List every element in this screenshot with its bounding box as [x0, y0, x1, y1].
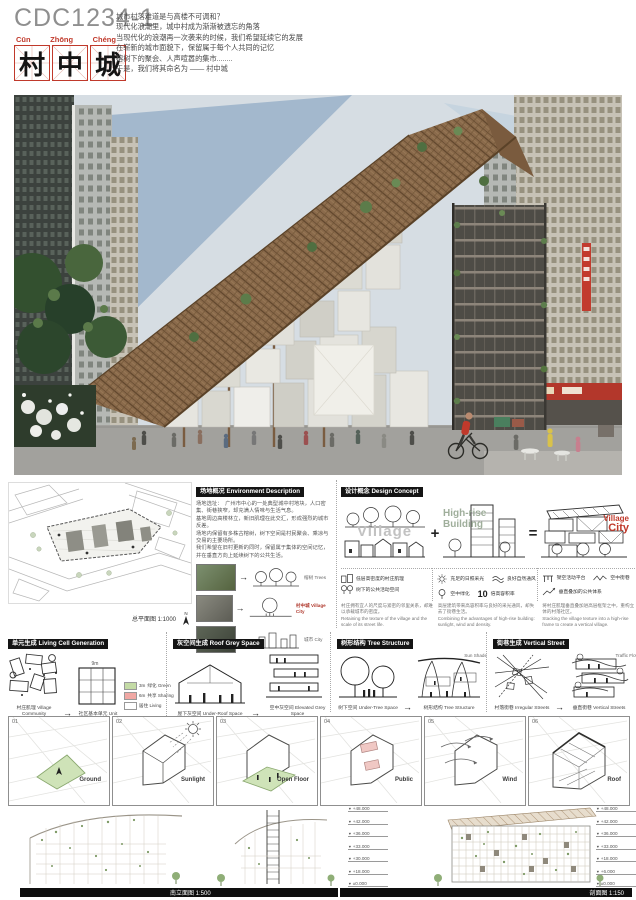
legend-label: 居住 Living: [139, 703, 161, 709]
section-header-concept: 设计概念 Design Concept: [341, 487, 423, 497]
presentation-board: CDC1234-1 Cūn Zhōng Chéng 村 中 城: [0, 0, 636, 900]
vertical-street-figure: Traffic Flow 垂直街巷 Vertical Streets: [568, 653, 630, 712]
process-panel-3: 03 Open Floor: [216, 716, 318, 806]
panel-number: 05: [428, 719, 434, 725]
houses-icon: [341, 574, 353, 583]
panel-label: Roof: [607, 777, 621, 783]
arrow-icon: →: [239, 573, 248, 582]
village-title: Village: [357, 523, 412, 540]
elevated-grey-figure: 空中灰空间 Elevated Grey Space: [264, 653, 331, 718]
module-grey-space: 灰空间生成 Roof Grey Space 屋下灰空间 Under-Roof S…: [166, 632, 331, 718]
level-row: ▼±0.000: [348, 881, 388, 887]
icon-label: 低层高密度的村庄肌理: [356, 575, 404, 582]
far-number: 10: [478, 589, 488, 599]
module-living-cell: 单元生成 Living Cell Generation: [8, 632, 160, 718]
level-row: ▼+36.000: [348, 831, 388, 837]
site-description-block: 场地概况 Environment Description 场地选址： 广州市中心…: [196, 480, 332, 628]
legend-chip-pink: [124, 692, 137, 700]
roof-space-figure: 屋下灰空间 Under-Roof Space: [173, 659, 247, 718]
intro-line: 于是，我们将其命名为 —— 村中城: [116, 64, 416, 74]
panel-number: 02: [116, 719, 122, 725]
levels-right: ▼+48.000 ▼+42.000 ▼+36.000 ▼+33.000 ▼+18…: [596, 806, 636, 894]
site-plan-drawing: [8, 482, 192, 604]
figure-label: 垂直街巷 Vertical Streets: [568, 706, 630, 712]
icon-label: 树下的公共活动空间: [356, 586, 399, 593]
dim-label: 6m: [139, 693, 145, 698]
icon-row: 良好自然通风: [492, 574, 536, 584]
icon-label: 垂直叠加的公共体系: [559, 588, 602, 595]
module-tree-structure: 树形结构 Tree Structure 树下空间 Under-Tree Spac…: [330, 632, 487, 712]
site-plan-caption: 总平面图 1:1000: [132, 614, 176, 623]
sun-shade-note: Sun Shade: [464, 653, 487, 658]
site-plan-block: 总平面图 1:1000 N: [8, 482, 190, 625]
highrise-title: High-rise Building: [443, 509, 486, 530]
intro-line: 在崭新的城市面貌下，保留属于每个人共同的记忆: [116, 43, 416, 53]
icon-row: 树下的公共活动空间: [341, 585, 432, 594]
concept-highrise: High-rise Building: [441, 501, 527, 566]
section-header-site: 场地概况 Environment Description: [196, 487, 304, 497]
plus-operator: +: [429, 526, 441, 541]
figure-label: 树形结构 Tree Structure: [416, 706, 482, 712]
wind-icon: [492, 575, 504, 583]
platform-icon: [542, 574, 554, 582]
levels-left: ▼+48.000 ▼+42.000 ▼+36.000 ▼+33.000 ▼+30…: [348, 806, 388, 894]
icon-row: 垂直叠加的公共体系: [542, 587, 635, 596]
module-vertical-street: 街巷生成 Vertical Street 村落街巷 Irregular Stre…: [486, 632, 636, 712]
panel-label: Open Floor: [277, 777, 309, 783]
label-trees: 榕树 Trees: [304, 575, 326, 581]
pinyin-row: Cūn Zhōng Chéng: [16, 35, 116, 44]
pinyin-cheng: Chéng: [93, 35, 116, 44]
icon-label: 倍高容积率: [491, 590, 515, 597]
process-panel-6: 06 Roof: [528, 716, 630, 806]
site-desc-text: 场地选址： 广州市中心的一处典型城中村地块，人口密集、街巷狭窄，却充满人情味与生…: [196, 501, 332, 560]
module-header: 单元生成 Living Cell Generation: [8, 639, 108, 649]
legend-chip-white: [124, 702, 137, 710]
site-desc-line: 场地选址： 广州市中心的一处典型城中村地块，人口密集、街巷狭窄，却充满人情味与生…: [196, 501, 332, 516]
level-row: ▼±0.000: [596, 881, 636, 887]
level-row: ▼+42.000: [596, 819, 636, 825]
frame-tower: [452, 203, 547, 430]
figure-label: 村落街巷 Irregular Streets: [493, 706, 551, 712]
massing-sketch: [321, 717, 419, 803]
north-arrow-icon: N: [182, 611, 190, 625]
ground-bar-left: 南立面图 1:500: [20, 888, 338, 897]
photo-row: → 村中城 Village City: [196, 595, 332, 622]
concept-equation: Village + High-rise Building: [341, 501, 635, 566]
intro-line: 当现代化的浪潮再一次袭来的时候，我们希望延续它的发展: [116, 33, 416, 43]
elevation-right: [428, 804, 608, 888]
icon-label: 架空活动平台: [557, 574, 586, 581]
arrow-icon: →: [236, 604, 245, 613]
intro-line: 现代化浪潮里，城中村成为渐渐被遗忘的角落: [116, 22, 416, 32]
level-row: ▼+33.000: [348, 844, 388, 850]
process-panel-5: 05 Wind: [424, 716, 526, 806]
trees-icon: [341, 585, 353, 594]
panel-label: Ground: [79, 777, 101, 783]
level-row: ▼+30.000: [348, 856, 388, 862]
intro-text: 城市村落难道是与高楼不可调和？ 现代化浪潮里，城中村成为渐渐被遗忘的角落 当现代…: [116, 12, 416, 75]
icon-label: 良好自然通风: [507, 575, 536, 582]
level-row: ▼+36.000: [596, 831, 636, 837]
highrise-desc: 高层建筑带来高容积率与良好的采光通风，却失去了街巷生活。 Combining t…: [434, 603, 539, 629]
concept-descriptions: 村庄拥有宜人的尺度与紧密的邻里关系，却难以承载城市的密度。 Retaining …: [341, 603, 635, 629]
massing-sketch: [529, 717, 627, 803]
site-desc-line: 基地周边高楼林立，新旧肌理在此交汇，形成强烈的城市反差。: [196, 516, 332, 531]
diagram-trees: [251, 565, 301, 590]
massing-sketch: [9, 717, 107, 803]
equals-operator: =: [527, 526, 539, 541]
icon-label: 充足的日照采光: [450, 575, 484, 582]
massing-sketch: [113, 717, 211, 803]
photo-village-street: [196, 595, 233, 622]
icon-row: 充足的日照采光: [437, 574, 484, 584]
arrow-icon: →: [403, 703, 412, 712]
site-desc-line: 我们希望在旧村更新的同时，保留属于集体的空间记忆，并在垂直方向上延续树下的公共生…: [196, 545, 332, 560]
level-row: ▼+18.000: [348, 869, 388, 875]
under-tree-figure: 树下空间 Under-Tree Space: [337, 653, 399, 712]
network-icon: [542, 587, 556, 596]
level-row: ▼+6.000: [596, 869, 636, 875]
elevation-left: [16, 804, 191, 888]
sun-icon: [437, 574, 447, 584]
concept-villagecity: Village City: [539, 501, 629, 566]
massing-sketch: [217, 717, 315, 803]
intro-line: 榕树下的聚会、人声喧嚣的集市........: [116, 54, 416, 64]
icon-row: 空中绿化: [437, 589, 469, 599]
process-panel-1: 01 Ground: [8, 716, 110, 806]
char-box: 中: [52, 45, 88, 81]
level-row: ▼+33.000: [596, 844, 636, 850]
char-zhong: 中: [57, 45, 83, 82]
street-plan-figure: 村落街巷 Irregular Streets: [493, 653, 551, 712]
photo-row: → 榕树 Trees: [196, 564, 332, 591]
site-desc-line: 场地内保留有多株古榕树，树下空间是村民聚会、乘凉与交易的主要场所。: [196, 531, 332, 546]
level-row: ▼+18.000: [596, 856, 636, 862]
pinyin-zhong: Zhōng: [50, 35, 73, 44]
pinyin-cun: Cūn: [16, 35, 31, 44]
module-header: 街巷生成 Vertical Street: [493, 639, 569, 649]
icon-label: 空中绿化: [450, 590, 469, 597]
villagecity-icons: 架空活动平台 空中街巷 垂直叠加的公共体系: [537, 568, 635, 601]
concept-icons: 低层高密度的村庄肌理 树下的公共活动空间 充足的日照采光: [341, 568, 635, 601]
caption-elevation: 南立面图 1:500: [170, 888, 211, 897]
module-header: 树形结构 Tree Structure: [337, 639, 413, 649]
icon-row: 低层高密度的村庄肌理: [341, 574, 432, 583]
level-row: ▼+48.000: [596, 806, 636, 812]
panel-label: Wind: [502, 777, 517, 783]
massing-sketch: [425, 717, 523, 803]
village-icons: 低层高密度的村庄肌理 树下的公共活动空间: [341, 568, 432, 601]
process-panel-4: 04 Public: [320, 716, 422, 806]
level-row: ▼+42.000: [348, 819, 388, 825]
legend-chip-green: [124, 682, 137, 690]
concept-block: 设计概念 Design Concept: [336, 480, 635, 628]
module-header: 灰空间生成 Roof Grey Space: [173, 639, 264, 649]
arrow-icon: →: [555, 703, 564, 712]
unit-grid-figure: 9m 社区基本单元 Unit: [75, 659, 121, 718]
figure-label: 树下空间 Under-Tree Space: [337, 706, 399, 712]
concept-village: Village: [341, 501, 429, 566]
panel-number: 04: [324, 719, 330, 725]
level-row: ▼+48.000: [348, 806, 388, 812]
icon-row: 空中街巷: [593, 574, 629, 582]
photo-village-trees: [196, 564, 236, 591]
ground-bar-right: 剖面图 1:150: [340, 888, 632, 897]
panel-label: Public: [395, 777, 413, 783]
panel-number: 03: [220, 719, 226, 725]
panel-label: Sunlight: [181, 777, 205, 783]
villagecity-desc: 将村庄肌理垂直叠加进高层框架之中，重构立体的村落社区。 Stacking the…: [538, 603, 635, 629]
main-render: [14, 95, 622, 475]
tree-structure-figure: Sun Shade 树形结构 Tree Structure: [416, 653, 482, 712]
panel-number: 01: [12, 719, 18, 725]
tree-icon: [437, 589, 447, 599]
intro-line: 城市村落难道是与高楼不可调和？: [116, 12, 416, 22]
village-fabric-figure: 村庄肌理 Village Community: [8, 653, 60, 718]
village-desc: 村庄拥有宜人的尺度与紧密的邻里关系，却难以承载城市的密度。 Retaining …: [341, 603, 434, 629]
caption-section: 剖面图 1:150: [589, 888, 624, 897]
icon-row: 10 倍高容积率: [478, 589, 515, 599]
svg-text:9m: 9m: [92, 661, 99, 667]
char-box: 村: [14, 45, 50, 81]
label-village-city: 村中城 Village City: [296, 603, 332, 614]
traffic-flow-note: Traffic Flow: [616, 653, 636, 658]
char-cun: 村: [19, 45, 45, 82]
panel-number: 06: [532, 719, 538, 725]
sky-street-icon: [593, 574, 607, 582]
section-middle: [205, 804, 340, 888]
icon-row: 架空活动平台: [542, 574, 586, 582]
diagram-big-tree: [248, 596, 293, 621]
highrise-icons: 充足的日照采光 良好自然通风 空中绿化 10: [432, 568, 536, 601]
villagecity-title: Village City: [603, 515, 629, 535]
dim-label: 3m: [139, 683, 145, 688]
icon-label: 空中街巷: [610, 574, 629, 581]
process-panel-2: 02 Sunlight: [112, 716, 214, 806]
